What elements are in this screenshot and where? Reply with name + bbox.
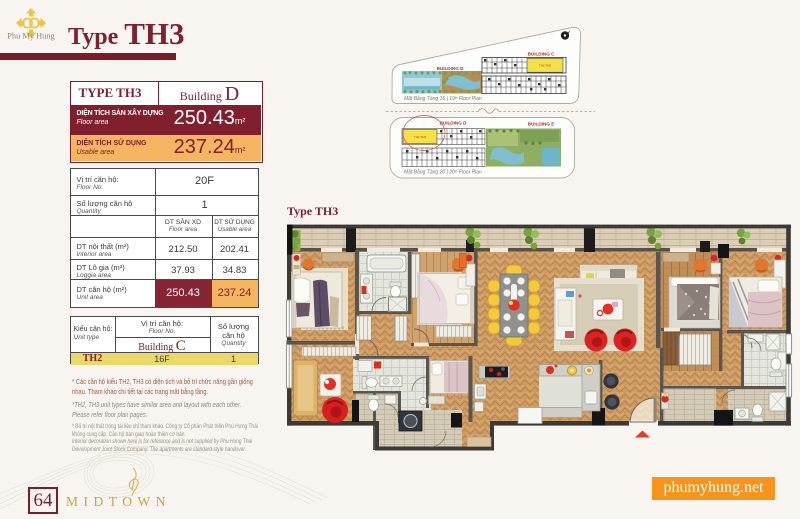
svg-text:TH2 TH3: TH2 TH3 (539, 64, 551, 68)
svg-text:BUILDING D: BUILDING D (437, 66, 464, 71)
svg-text:BUILDING C: BUILDING C (528, 52, 555, 57)
svg-text:Mặt Bằng Tầng 16 | 19th Floor: Mặt Bằng Tầng 16 | 19th Floor Plan (404, 95, 482, 102)
svg-text:Phu My Hung: Phu My Hung (7, 32, 55, 41)
svg-text:TH2 TH3: TH2 TH3 (414, 135, 426, 139)
svg-text:BUILDING E: BUILDING E (528, 122, 555, 127)
svg-text:BUILDING D: BUILDING D (440, 121, 467, 126)
svg-text:Mặt Bằng Tầng 20 | 20th Floor: Mặt Bằng Tầng 20 | 20th Floor Plan (404, 169, 482, 176)
